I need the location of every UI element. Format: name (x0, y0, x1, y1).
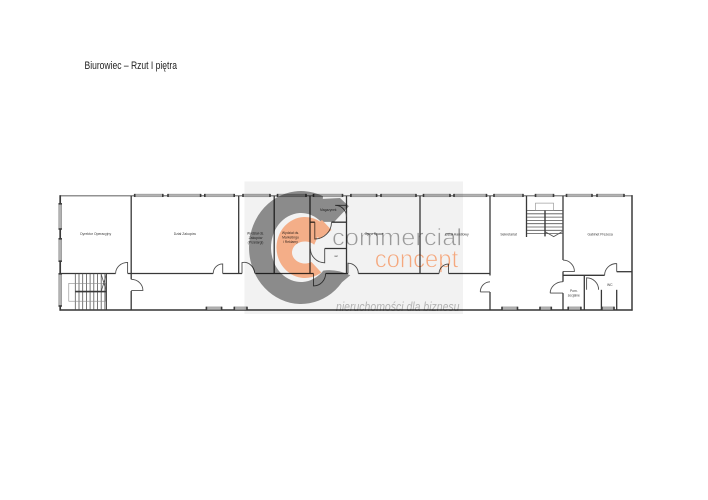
svg-text:concept: concept (375, 246, 459, 274)
svg-text:WC: WC (607, 283, 613, 287)
svg-text:nieruchomości dla biznesu: nieruchomości dla biznesu (336, 300, 460, 314)
svg-text:Gabinet Prezesa: Gabinet Prezesa (587, 233, 612, 237)
svg-text:Biurowiec – Rzut I piętra: Biurowiec – Rzut I piętra (85, 60, 178, 72)
svg-text:Sekretariat: Sekretariat (500, 233, 516, 237)
svg-text:Dyrektor Operacyjny: Dyrektor Operacyjny (80, 232, 111, 236)
svg-text:Dział Zakupów: Dział Zakupów (174, 232, 197, 236)
